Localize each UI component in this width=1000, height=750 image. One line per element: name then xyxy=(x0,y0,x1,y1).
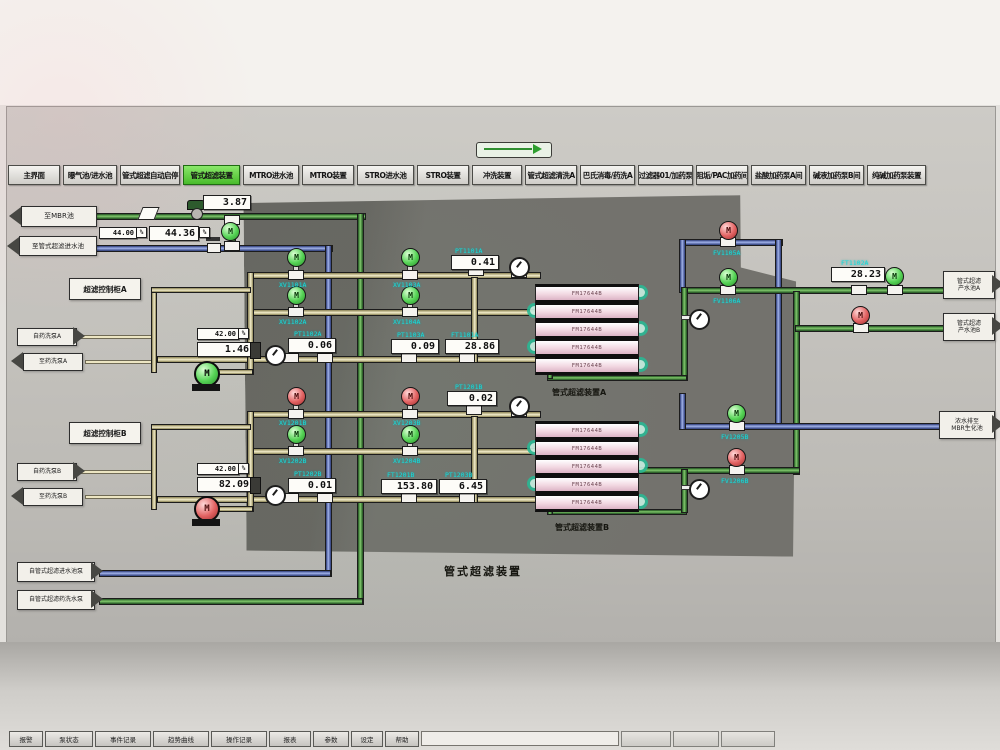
tag-xv1103a: XV1103A xyxy=(393,281,420,289)
cabinet-a-label: 超滤控制柜A xyxy=(69,278,141,300)
io-to-cip-pump-a: 至药洗泵A xyxy=(23,353,83,371)
arrow-right-icon xyxy=(992,275,1000,293)
arrow-left-icon xyxy=(9,207,21,225)
value-pump-b-speed[interactable]: 82.09 xyxy=(197,477,253,492)
io-permeate-tank-a: 管式超滤产水池A xyxy=(943,271,995,299)
value-pt1101a[interactable]: 0.41 xyxy=(451,255,499,270)
setpoint-pump-b: 42.00 xyxy=(197,463,239,475)
nav-tab-soda-dosing[interactable]: 纯碱加药泵装置 xyxy=(867,165,926,185)
value-pt1202b[interactable]: 0.01 xyxy=(288,478,336,493)
membrane-module: FM17644B xyxy=(535,421,639,440)
pipe-green-bottom xyxy=(99,598,363,605)
caption-system: 管式超滤装置 xyxy=(444,563,522,579)
flange xyxy=(288,307,304,317)
nav-tab-stro-unit[interactable]: STRO装置 xyxy=(417,165,469,185)
pressure-gauge-ra xyxy=(689,309,710,330)
membrane-module: FM17644B xyxy=(535,338,639,357)
caption-unit-b: 管式超滤装置B xyxy=(555,522,609,533)
tag-pt1202b: PT1202B xyxy=(294,470,321,478)
setpoint-pump-a: 42.00 xyxy=(197,328,239,340)
tag-xv1104a: XV1104A xyxy=(393,318,420,326)
flange xyxy=(401,353,417,363)
value-feed-flow[interactable]: 44.36 xyxy=(149,226,199,241)
tag-xv1204b: XV1204B xyxy=(393,457,420,465)
arrow-right-icon xyxy=(73,462,85,480)
valve-xv1203b[interactable]: M xyxy=(401,387,420,406)
pipe-blue-loop-right xyxy=(775,239,782,429)
tag-xv1102a: XV1102A xyxy=(279,318,306,326)
flow-progress-indicator xyxy=(476,142,552,158)
caption-unit-a: 管式超滤装置A xyxy=(552,387,606,398)
valve-xv1103a[interactable]: M xyxy=(401,248,420,267)
valve-xv1201b[interactable]: M xyxy=(287,387,306,406)
flange xyxy=(288,270,304,280)
membrane-module: FM17644B xyxy=(535,439,639,458)
flange xyxy=(459,493,475,503)
flange xyxy=(402,307,418,317)
tag-fv1106a: FV1106A xyxy=(713,297,740,305)
footer-tab-events[interactable]: 事件记录 xyxy=(95,731,151,747)
io-from-feed-pump: 自管式超滤进水池泵 xyxy=(17,562,95,582)
arrow-left-icon xyxy=(11,352,23,370)
pipe-a-pump-out xyxy=(215,369,253,375)
nav-tab-uf-autostart[interactable]: 管式超滤自动启停 xyxy=(120,165,180,185)
pipe-b-loop-top xyxy=(151,424,251,430)
flange xyxy=(224,241,240,251)
nav-tab-pasteurize[interactable]: 巴氏消毒/药洗A xyxy=(580,165,635,185)
tag-pt1102a: PT1102A xyxy=(294,330,321,338)
value-pt1102a[interactable]: 0.06 xyxy=(288,338,336,353)
io-from-cip-water-pump: 自管式超滤药洗水泵 xyxy=(17,590,95,610)
valve-permeate-a-out[interactable]: M xyxy=(885,267,904,286)
footer-tab-alarm[interactable]: 报警 xyxy=(9,731,43,747)
arrow-right-icon xyxy=(91,562,103,580)
pipe-blue-concentrate-b xyxy=(683,423,947,430)
spinner-button[interactable] xyxy=(250,477,261,494)
flange xyxy=(402,446,418,456)
tag-xv1201b: XV1201B xyxy=(279,419,306,427)
actuator-valve-body xyxy=(191,208,203,220)
tag-ft1201b: FT1201B xyxy=(387,471,414,479)
unit-percent: % xyxy=(199,227,210,238)
footer-tab-help[interactable]: 帮助 xyxy=(385,731,419,747)
membrane-module: FM17644B xyxy=(535,320,639,339)
io-from-cip-pump-a: 自药洗泵A xyxy=(17,328,77,346)
membrane-module: FM17644B xyxy=(535,493,639,512)
membrane-module: FM17644B xyxy=(535,356,639,375)
value-ft1201b[interactable]: 153.80 xyxy=(381,479,437,494)
tag-pt1203b: PT1203B xyxy=(445,471,472,479)
footer-extra-button[interactable] xyxy=(673,731,719,747)
footer-tab-trends[interactable]: 趋势曲线 xyxy=(153,731,209,747)
value-pt1201b[interactable]: 0.02 xyxy=(447,391,497,406)
nav-tab-filter-dosing[interactable]: 过滤器01/加药泵 xyxy=(638,165,693,185)
gate-valve-flange xyxy=(207,243,221,253)
value-pt1103a[interactable]: 0.09 xyxy=(391,339,439,354)
tag-ft1102a: FT1102A xyxy=(841,259,868,267)
unit-percent: % xyxy=(238,328,249,339)
arrow-right-icon xyxy=(992,317,1000,335)
nav-tab-stro-feed[interactable]: STRO进水池 xyxy=(357,165,414,185)
valve-permeate-a2-out[interactable]: M xyxy=(851,306,870,325)
footer-status-bar xyxy=(421,731,619,746)
chem-line-b-return xyxy=(85,495,155,499)
nav-tab-mtro-unit[interactable]: MTRO装置 xyxy=(302,165,354,185)
pipe-a-loop-riser xyxy=(151,287,157,373)
membrane-module: FM17644B xyxy=(535,475,639,494)
tag-ft1101a: FT1101A xyxy=(451,331,478,339)
pipe-blue-bottom xyxy=(99,570,331,577)
flange xyxy=(288,409,304,419)
pressure-gauge-rb xyxy=(689,479,710,500)
tag-xv1202b: XV1202B xyxy=(279,457,306,465)
setpoint-feed: 44.00 xyxy=(99,227,137,239)
nav-bar: 主界面 曝气池/进水池 管式超滤自动启停 管式超滤装置 MTRO进水池 MTRO… xyxy=(8,165,926,185)
nav-tab-uf-unit-active[interactable]: 管式超滤装置 xyxy=(183,165,240,185)
pipe-b-loop-riser xyxy=(151,424,157,510)
footer-tab-oplog[interactable]: 操作记录 xyxy=(211,731,267,747)
valve-fv1205b[interactable]: M xyxy=(727,404,746,423)
tag-pt1103a: PT1103A xyxy=(397,331,424,339)
pipe-green-collect-a xyxy=(681,287,688,381)
footer-extra-button[interactable] xyxy=(621,731,671,747)
pressure-gauge-b3 xyxy=(265,485,286,506)
valve-xv1101a[interactable]: M xyxy=(287,248,306,267)
flange xyxy=(317,353,333,363)
membrane-module: FM17644B xyxy=(535,457,639,476)
arrow-right-icon xyxy=(91,590,103,608)
nav-tab-uf-cip-a[interactable]: 管式超滤清洗A xyxy=(525,165,577,185)
scada-screen: M 3.87 44.00 % 44.36 % M XV1101A M XV110… xyxy=(6,106,996,644)
arrow-right-icon xyxy=(992,415,1000,433)
flange xyxy=(851,285,867,295)
pressure-gauge-b1 xyxy=(509,396,530,417)
nav-tab-caustic-dosing[interactable]: 碱液加药泵B间 xyxy=(809,165,864,185)
tag-fv1205b: FV1205B xyxy=(721,433,748,441)
pipe-a-row3 xyxy=(157,356,541,363)
membrane-module: FM17644B xyxy=(535,284,639,303)
nav-tab-aeration-feed[interactable]: 曝气池/进水池 xyxy=(63,165,117,185)
footer-tab-reports[interactable]: 报表 xyxy=(269,731,311,747)
tag-fv1206b: FV1206B xyxy=(721,477,748,485)
tag-pt1201b: PT1201B xyxy=(455,383,482,391)
membrane-module: FM17644B xyxy=(535,302,639,321)
chem-line-a-supply xyxy=(81,335,155,339)
tag-pt1101a: PT1101A xyxy=(455,247,482,255)
valve-xv1204b[interactable]: M xyxy=(401,425,420,444)
tag-fv1105a: FV1105A xyxy=(713,249,740,257)
io-from-cip-pump-b: 自药洗泵B xyxy=(17,463,77,481)
flange xyxy=(459,353,475,363)
arrow-right-icon xyxy=(73,327,85,345)
flange xyxy=(466,405,482,415)
nav-tab-main[interactable]: 主界面 xyxy=(8,165,60,185)
chem-line-b-supply xyxy=(81,470,155,474)
pipe-b-pump-out xyxy=(217,506,253,512)
pipe-a-loop-top xyxy=(151,287,251,293)
footer-extra-button[interactable] xyxy=(721,731,775,747)
pipe-blue-loop-left xyxy=(679,239,686,293)
io-permeate-tank-b: 管式超滤产水池B xyxy=(943,313,995,341)
valve-fv1206b[interactable]: M xyxy=(727,448,746,467)
value-pump-a-speed[interactable]: 1.46 xyxy=(197,342,253,357)
footer-tab-bar: 报警 泵状态 事件记录 趋势曲线 操作记录 报表 参数 设定 帮助 xyxy=(9,731,775,747)
spinner-button[interactable] xyxy=(250,342,261,359)
valve-fv1106a[interactable]: M xyxy=(719,268,738,287)
io-to-mbr: 至MBR池 xyxy=(21,206,97,227)
io-to-cip-pump-b: 至药洗泵B xyxy=(23,488,83,506)
pump-uf-b[interactable]: M xyxy=(194,496,220,522)
unit-percent: % xyxy=(136,227,147,238)
flange xyxy=(402,270,418,280)
io-to-uf-feed-tank: 至管式超滤进水池 xyxy=(19,236,97,256)
pressure-gauge-a3 xyxy=(265,345,286,366)
flange xyxy=(401,493,417,503)
pipe-green-b-riser xyxy=(681,469,688,513)
nav-tab-flush[interactable]: 冲洗装置 xyxy=(472,165,522,185)
io-concentrate-to-mbr: 浓水排至MBR生化池 xyxy=(939,411,995,439)
valve-recycle-ball[interactable]: M xyxy=(221,222,240,241)
footer-tab-pump-status[interactable]: 泵状态 xyxy=(45,731,93,747)
unit-percent: % xyxy=(238,463,249,474)
arrow-left-icon xyxy=(7,237,19,255)
tag-xv1203b: XV1203B xyxy=(393,419,420,427)
nav-tab-antiscalant[interactable]: 阻垢/PAC加药间 xyxy=(696,165,748,185)
footer-tab-params[interactable]: 参数 xyxy=(313,731,349,747)
flange xyxy=(402,409,418,419)
nav-tab-acid-dosing[interactable]: 盐酸加药泵A间 xyxy=(751,165,806,185)
arrow-left-icon xyxy=(11,487,23,505)
tag-xv1101a: XV1101A xyxy=(279,281,306,289)
pressure-gauge-a1 xyxy=(509,257,530,278)
chem-line-a-return xyxy=(85,360,155,364)
cabinet-b-label: 超滤控制柜B xyxy=(69,422,141,444)
pipe-green-modA-bottom xyxy=(547,375,687,381)
value-recycle-pressure[interactable]: 3.87 xyxy=(203,195,251,210)
monitor-photo: 水处理系统 2025/8/25 10:40:10 主界面 曝气池/进水池 管式超… xyxy=(0,0,1000,750)
nav-tab-mtro-feed[interactable]: MTRO进水池 xyxy=(243,165,299,185)
value-ft1101a[interactable]: 28.86 xyxy=(445,339,499,354)
flange xyxy=(887,285,903,295)
pipe-blue-b-stub xyxy=(679,393,686,430)
valve-fv1105a[interactable]: M xyxy=(719,221,738,240)
flange xyxy=(317,493,333,503)
pump-uf-a[interactable]: M xyxy=(194,361,220,387)
pipe-green-permeate-a2 xyxy=(795,325,947,332)
flange xyxy=(288,446,304,456)
value-ft1102a[interactable]: 28.23 xyxy=(831,267,885,282)
footer-tab-settings[interactable]: 设定 xyxy=(351,731,383,747)
valve-xv1202b[interactable]: M xyxy=(287,425,306,444)
pipe-green-right-drop xyxy=(793,291,800,475)
value-pt1203b[interactable]: 6.45 xyxy=(439,479,487,494)
